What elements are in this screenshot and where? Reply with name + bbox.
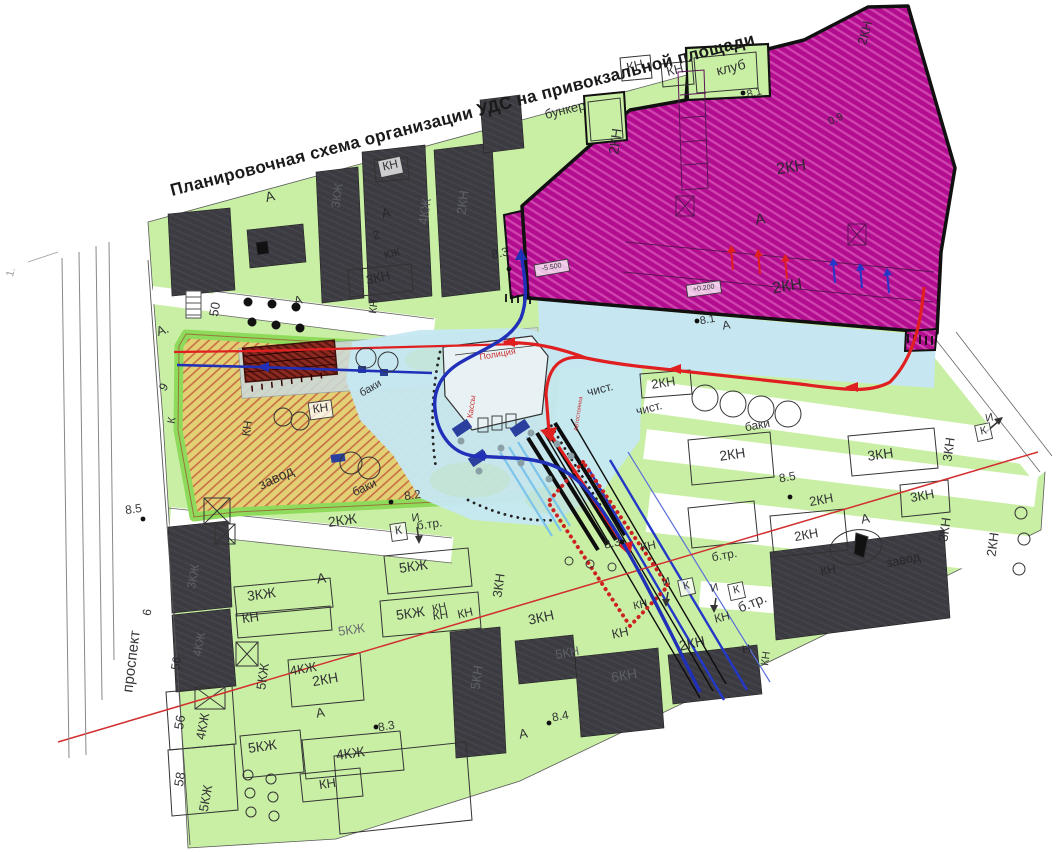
map-label: 56 xyxy=(171,714,188,731)
map-dot xyxy=(507,267,512,272)
map-label: КН xyxy=(239,420,255,437)
map-canvas: клубКНКН8.1бункер2КН2КН0.92КНА2КН8.1А8.3… xyxy=(0,0,1058,852)
map-dot xyxy=(546,476,553,483)
scanned-plan-page: клубКНКН8.1бункер2КН2КН0.92КНА2КН8.1А8.3… xyxy=(0,0,1058,852)
map-label: 8.5 xyxy=(124,501,143,517)
map-label: КН xyxy=(241,609,260,626)
map-dot xyxy=(272,321,281,330)
map-dot xyxy=(244,298,253,307)
map-label: 8.4 xyxy=(551,708,570,725)
map-dot xyxy=(296,324,305,333)
map-label: КН xyxy=(432,607,449,623)
map-dot xyxy=(554,441,561,448)
map-label: КН xyxy=(759,651,773,667)
map-dot xyxy=(389,500,394,505)
map-dot xyxy=(498,445,505,452)
map-label: И xyxy=(411,512,420,525)
map-label: 56 xyxy=(168,655,184,671)
map-label: 8.5 xyxy=(778,469,797,486)
map-dot xyxy=(476,468,483,475)
map-dot xyxy=(458,438,465,445)
map-label: 8.3 xyxy=(377,718,396,735)
map-dot xyxy=(248,318,257,327)
map-label: КН xyxy=(367,299,381,315)
map-dot xyxy=(568,453,575,460)
map-dot xyxy=(268,300,277,309)
map-label: 8.2 xyxy=(403,487,422,503)
map-dot xyxy=(788,495,793,500)
map-dot xyxy=(547,721,552,726)
map-dot xyxy=(518,460,525,467)
map-dot xyxy=(741,91,746,96)
map-label: КН xyxy=(312,400,329,416)
map-label: 58 xyxy=(171,771,188,788)
map-label: КН xyxy=(318,775,337,792)
map-dot xyxy=(528,430,535,437)
map-label: 50 xyxy=(206,301,223,318)
map-dot xyxy=(141,517,146,522)
